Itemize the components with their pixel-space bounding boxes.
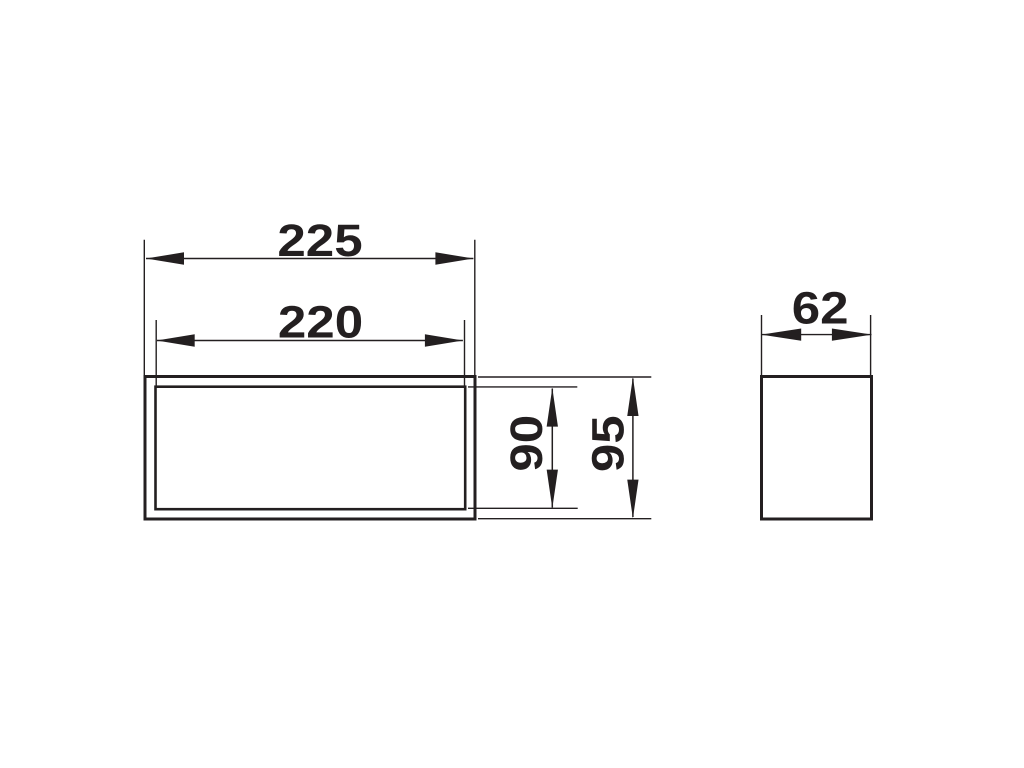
svg-text:90: 90: [501, 415, 552, 472]
svg-text:220: 220: [278, 297, 363, 348]
svg-text:95: 95: [583, 415, 634, 472]
svg-text:225: 225: [277, 215, 362, 266]
svg-text:62: 62: [792, 282, 849, 333]
